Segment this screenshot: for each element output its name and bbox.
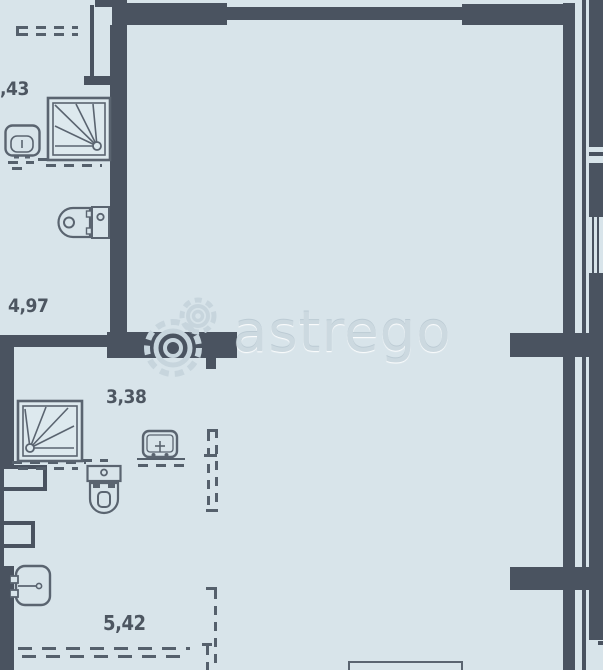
area-label-bathroom-lower: 3,38 bbox=[106, 386, 146, 408]
wall-right-strip-c bbox=[589, 273, 603, 637]
floor-plan-canvas: astrego ,43 4,97 3,38 5,42 bbox=[0, 0, 603, 670]
toilet-lower-icon bbox=[85, 460, 123, 516]
tile-dashes-lower-sink bbox=[138, 464, 184, 467]
dashed-opening-bottom bbox=[18, 647, 190, 659]
wall-right-strip-a bbox=[589, 0, 603, 147]
wall-exterior-line-right bbox=[582, 0, 586, 670]
tile-dashes-upper-sink-2 bbox=[12, 167, 28, 170]
wall-top-pier-left bbox=[112, 3, 227, 25]
wall-right-strip-b bbox=[589, 163, 603, 217]
washbasin-upper-icon bbox=[4, 124, 42, 160]
wall-divider-vertical bbox=[110, 25, 127, 335]
watermark-text: astrego bbox=[233, 300, 452, 365]
wall-mid-left bbox=[0, 335, 110, 347]
wall-right-tick bbox=[589, 637, 603, 640]
wall-top-window bbox=[227, 7, 462, 20]
sink-hallway-icon bbox=[10, 564, 54, 608]
tile-dashes-upper-sink-1 bbox=[8, 161, 34, 164]
watermark-gears-icon bbox=[128, 286, 238, 386]
area-label-bathroom-upper: 4,97 bbox=[8, 295, 48, 317]
duct-dashed-lower bbox=[202, 585, 218, 670]
wall-right-notch-line bbox=[589, 152, 603, 156]
tile-dashes-lower-shower-2 bbox=[18, 467, 78, 470]
wall-right-window-line-b bbox=[597, 217, 599, 273]
wall-right-window-line-a bbox=[592, 217, 594, 273]
area-label-niche: ,43 bbox=[0, 78, 29, 100]
tile-dashes-upper-shower-2 bbox=[46, 164, 102, 167]
wall-pier-window-b bbox=[0, 521, 35, 548]
wall-top-pier-right bbox=[462, 4, 573, 25]
wall-stub-top-left bbox=[84, 76, 112, 85]
wall-right-mark bbox=[598, 641, 603, 645]
area-label-hallway: 5,42 bbox=[103, 611, 146, 635]
window-gap-a bbox=[4, 491, 14, 521]
dashed-opening-top-left bbox=[16, 26, 78, 36]
furniture-bottom-outline bbox=[348, 661, 463, 670]
wall-thin-line-top-left bbox=[90, 5, 94, 79]
duct-dashed-upper bbox=[204, 429, 218, 513]
washbasin-lower-icon bbox=[141, 429, 181, 461]
shower-tray-upper-icon bbox=[46, 96, 112, 162]
shower-tray-lower-icon bbox=[16, 399, 86, 465]
toilet-upper-icon bbox=[56, 204, 112, 242]
